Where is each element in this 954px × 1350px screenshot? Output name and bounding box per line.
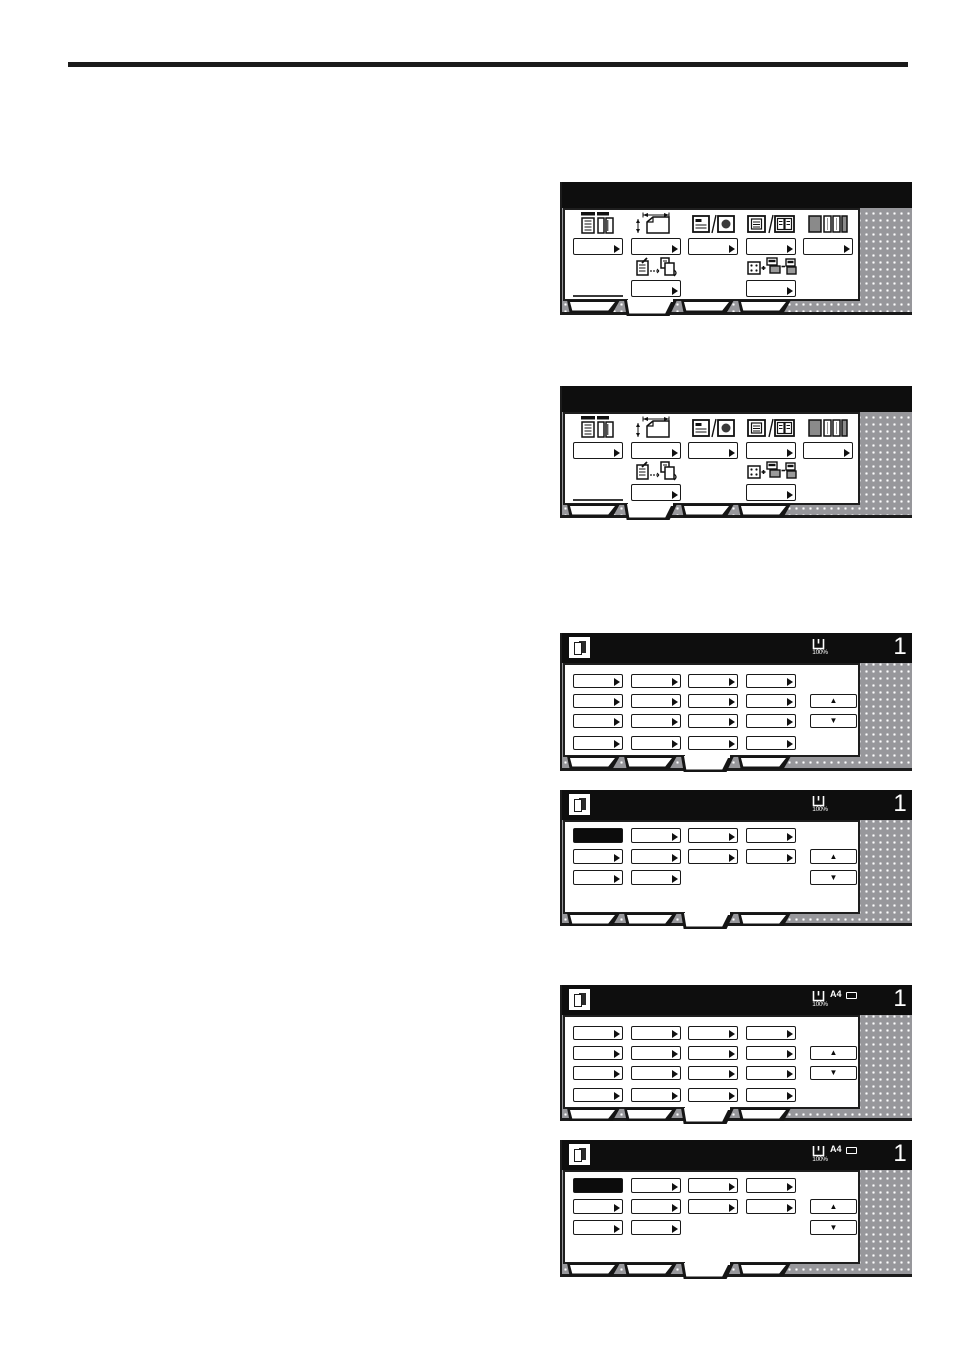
list-item-button[interactable]	[631, 694, 681, 708]
list-item-button[interactable]	[688, 849, 738, 864]
corner-arrow-icon	[729, 740, 735, 748]
tab-face	[570, 915, 615, 924]
screen-tab-3[interactable]	[681, 1263, 734, 1279]
tab-face	[627, 915, 672, 924]
corner-arrow-icon	[787, 245, 793, 253]
corner-arrow-icon	[729, 1050, 735, 1058]
tab-face	[627, 504, 672, 518]
list-item-button[interactable]	[631, 714, 681, 728]
screen-tab-4[interactable]	[738, 300, 791, 313]
screen-header-bar	[562, 386, 912, 412]
tab-face	[741, 506, 786, 515]
paper-sheet-icon	[846, 1147, 857, 1154]
corner-arrow-icon	[614, 1225, 620, 1233]
active-tab-body-join	[685, 1105, 730, 1110]
feature-button[interactable]	[631, 442, 681, 459]
feature-button[interactable]	[688, 238, 738, 255]
corner-arrow-icon	[672, 245, 678, 253]
feature-button[interactable]	[746, 484, 796, 501]
scroll-down-button[interactable]: ▼	[810, 1066, 857, 1080]
original-document-icon	[569, 1144, 590, 1165]
list-item-button[interactable]	[746, 1046, 796, 1060]
list-item-button[interactable]	[746, 1026, 796, 1040]
tab-face	[741, 915, 786, 924]
copy-count-value: 1	[890, 634, 910, 660]
screen-tab-2[interactable]	[624, 1108, 677, 1121]
list-item-button[interactable]	[573, 736, 623, 750]
active-tab-body-join	[685, 1260, 730, 1265]
corner-arrow-icon	[729, 1204, 735, 1212]
screen-tab-1[interactable]	[567, 1263, 620, 1276]
list-item-button[interactable]	[631, 1088, 681, 1102]
page-front	[574, 642, 582, 655]
feature-button[interactable]	[573, 238, 623, 255]
corner-arrow-icon	[614, 449, 620, 457]
list-item-button[interactable]	[573, 1220, 623, 1235]
page-front	[574, 994, 582, 1007]
corner-arrow-icon	[614, 1050, 620, 1058]
original-document-icon	[569, 989, 590, 1010]
screen-tab-3[interactable]	[681, 504, 734, 517]
sort-stack-icon	[801, 416, 855, 440]
screen-tab-4[interactable]	[738, 1108, 791, 1121]
list-item-button[interactable]	[631, 828, 681, 843]
scroll-up-button[interactable]: ▲	[810, 1199, 857, 1214]
tab-face	[570, 302, 615, 311]
page-front	[574, 1149, 582, 1162]
corner-arrow-icon	[614, 698, 620, 706]
list-item-button[interactable]	[631, 674, 681, 688]
screen-tab-1[interactable]	[567, 300, 620, 313]
screen-tab-4[interactable]	[738, 756, 791, 769]
corner-arrow-icon	[672, 287, 678, 295]
feature-button[interactable]	[746, 280, 796, 297]
corner-arrow-icon	[672, 875, 678, 883]
corner-arrow-icon	[729, 449, 735, 457]
corner-arrow-icon	[844, 245, 850, 253]
corner-arrow-icon	[787, 1204, 793, 1212]
screen-tab-1[interactable]	[567, 756, 620, 769]
scroll-down-button[interactable]: ▼	[810, 1220, 857, 1235]
screen-tab-4[interactable]	[738, 504, 791, 517]
list-item-button[interactable]	[631, 849, 681, 864]
corner-arrow-icon	[787, 678, 793, 686]
screen-body	[563, 412, 860, 505]
list-item-button[interactable]	[688, 1046, 738, 1060]
feature-button[interactable]	[573, 442, 623, 459]
list-item-button[interactable]	[631, 870, 681, 885]
duplex-pages-icon	[571, 212, 625, 236]
list-item-button[interactable]	[746, 1178, 796, 1193]
edit-copy-icon	[629, 460, 683, 484]
corner-arrow-icon	[844, 449, 850, 457]
tab-face	[684, 1263, 729, 1277]
list-item-button[interactable]	[746, 736, 796, 750]
list-item-button[interactable]	[573, 870, 623, 885]
list-item-button[interactable]	[746, 1066, 796, 1080]
tab-face	[570, 1110, 615, 1119]
list-item-button[interactable]	[631, 1220, 681, 1235]
tab-face	[684, 302, 729, 311]
tab-face	[741, 758, 786, 767]
tab-face	[684, 756, 729, 770]
corner-arrow-icon	[729, 245, 735, 253]
size-list-screen-a4-selected: 100%A41▲▼	[560, 1140, 912, 1277]
scroll-up-button[interactable]: ▲	[810, 849, 857, 864]
corner-arrow-icon	[614, 678, 620, 686]
edit-copy-icon	[629, 256, 683, 280]
feature-button[interactable]	[631, 484, 681, 501]
screen-tab-3[interactable]	[681, 1108, 734, 1124]
list-item-button[interactable]	[631, 1178, 681, 1193]
list-item-button[interactable]	[746, 694, 796, 708]
corner-arrow-icon	[672, 1030, 678, 1038]
corner-arrow-icon	[614, 245, 620, 253]
list-item-button[interactable]	[688, 1066, 738, 1080]
program-blocks-icon	[744, 256, 798, 280]
feature-button[interactable]	[803, 442, 853, 459]
corner-arrow-icon	[729, 1070, 735, 1078]
list-item-button[interactable]	[631, 736, 681, 750]
feature-button[interactable]	[688, 442, 738, 459]
tab-face	[627, 758, 672, 767]
tab-face	[570, 1265, 615, 1274]
tab-face	[684, 913, 729, 927]
scroll-up-button[interactable]: ▲	[810, 1046, 857, 1060]
screen-header-bar: 100%A41	[562, 985, 912, 1015]
list-item-button[interactable]	[573, 1026, 623, 1040]
corner-arrow-icon	[672, 1204, 678, 1212]
added-functions-screen-a	[560, 182, 912, 315]
list-item-button[interactable]	[688, 674, 738, 688]
corner-arrow-icon	[787, 718, 793, 726]
tab-face	[741, 1265, 786, 1274]
list-item-button[interactable]	[688, 828, 738, 843]
list-item-button[interactable]	[688, 694, 738, 708]
paper-sheet-icon	[846, 992, 857, 999]
list-item-button[interactable]	[573, 1199, 623, 1214]
corner-arrow-icon	[672, 1050, 678, 1058]
zoom-ratio-label: 100%	[805, 807, 835, 814]
screen-body: ▲▼	[563, 820, 860, 914]
corner-arrow-icon	[787, 740, 793, 748]
screen-tab-4[interactable]	[738, 1263, 791, 1276]
feature-button[interactable]	[803, 238, 853, 255]
corner-arrow-icon	[787, 287, 793, 295]
active-tab-body-join	[628, 297, 673, 302]
tab-face	[627, 1265, 672, 1274]
added-functions-screen-b	[560, 386, 912, 518]
tab-face	[684, 1108, 729, 1122]
screen-tab-2[interactable]	[624, 756, 677, 769]
paper-size-label: A4	[830, 990, 842, 999]
corner-arrow-icon	[787, 449, 793, 457]
screen-tab-2[interactable]	[624, 504, 677, 520]
sort-stack-icon	[801, 212, 855, 236]
list-item-button[interactable]	[631, 1046, 681, 1060]
list-item-button[interactable]	[573, 1088, 623, 1102]
corner-arrow-icon	[672, 1183, 678, 1191]
corner-arrow-icon	[672, 1092, 678, 1100]
original-size-icon	[629, 416, 683, 440]
tab-face	[627, 1110, 672, 1119]
corner-arrow-icon	[614, 1092, 620, 1100]
corner-arrow-icon	[614, 854, 620, 862]
list-item-button[interactable]	[688, 1178, 738, 1193]
book-pages-icon	[744, 212, 798, 236]
corner-arrow-icon	[787, 833, 793, 841]
corner-arrow-icon	[614, 875, 620, 883]
screen-header-bar: 100%1	[562, 633, 912, 663]
list-item-button[interactable]	[573, 1066, 623, 1080]
corner-arrow-icon	[787, 854, 793, 862]
list-item-button[interactable]	[688, 736, 738, 750]
feature-button[interactable]	[631, 280, 681, 297]
corner-arrow-icon	[614, 740, 620, 748]
tab-face	[741, 1110, 786, 1119]
feature-button[interactable]	[746, 442, 796, 459]
list-item-button[interactable]	[573, 714, 623, 728]
screen-tab-1[interactable]	[567, 504, 620, 517]
text-photo-icon	[686, 212, 740, 236]
corner-arrow-icon	[787, 1092, 793, 1100]
list-item-button-selected[interactable]	[573, 828, 623, 843]
corner-arrow-icon	[672, 833, 678, 841]
screen-tab-2[interactable]	[624, 913, 677, 926]
corner-arrow-icon	[672, 1225, 678, 1233]
tab-face	[684, 506, 729, 515]
page-front	[574, 799, 582, 812]
status-message-line	[573, 295, 623, 297]
screen-tab-3[interactable]	[681, 913, 734, 929]
original-document-icon	[569, 637, 590, 658]
screen-body: ▲▼	[563, 1015, 860, 1109]
duplex-pages-icon	[571, 416, 625, 440]
paper-size-label: A4	[830, 1145, 842, 1154]
corner-arrow-icon	[672, 449, 678, 457]
corner-arrow-icon	[787, 698, 793, 706]
list-item-button-selected[interactable]	[573, 1178, 623, 1193]
corner-arrow-icon	[787, 491, 793, 499]
corner-arrow-icon	[787, 1183, 793, 1191]
list-item-button[interactable]	[746, 674, 796, 688]
text-photo-icon	[686, 416, 740, 440]
corner-arrow-icon	[672, 740, 678, 748]
list-item-button[interactable]	[631, 1199, 681, 1214]
copy-count-value: 1	[890, 1141, 910, 1167]
list-item-button[interactable]	[573, 1046, 623, 1060]
list-item-button[interactable]	[688, 714, 738, 728]
corner-arrow-icon	[729, 1183, 735, 1191]
feature-button[interactable]	[631, 238, 681, 255]
list-item-button[interactable]	[688, 1026, 738, 1040]
size-list-screen-a4-blank: 100%A41▲▼	[560, 985, 912, 1121]
screen-body: ▲▼	[563, 1170, 860, 1264]
corner-arrow-icon	[672, 854, 678, 862]
tab-face	[570, 758, 615, 767]
copy-count-value: 1	[890, 986, 910, 1012]
scroll-up-button[interactable]: ▲	[810, 694, 857, 708]
corner-arrow-icon	[787, 1030, 793, 1038]
screen-header-bar: 100%A41	[562, 1140, 912, 1170]
zoom-ratio-label: 100%	[805, 650, 835, 657]
corner-arrow-icon	[614, 1070, 620, 1078]
corner-arrow-icon	[729, 1092, 735, 1100]
corner-arrow-icon	[729, 698, 735, 706]
screen-tab-2[interactable]	[624, 1263, 677, 1276]
corner-arrow-icon	[614, 718, 620, 726]
list-item-button[interactable]	[688, 1199, 738, 1214]
list-item-button[interactable]	[573, 674, 623, 688]
corner-arrow-icon	[672, 491, 678, 499]
size-list-screen-blank: 100%1▲▼	[560, 633, 912, 771]
corner-arrow-icon	[729, 678, 735, 686]
status-message-line	[573, 499, 623, 501]
scroll-down-button[interactable]: ▼	[810, 714, 857, 728]
corner-arrow-icon	[672, 698, 678, 706]
screen-header-bar: 100%1	[562, 790, 912, 820]
original-size-icon	[629, 212, 683, 236]
corner-arrow-icon	[614, 1030, 620, 1038]
screen-header-bar	[562, 182, 912, 208]
screen-tab-4[interactable]	[738, 913, 791, 926]
feature-button[interactable]	[746, 238, 796, 255]
tab-face	[627, 300, 672, 314]
list-item-button[interactable]	[746, 1199, 796, 1214]
copy-count-value: 1	[890, 791, 910, 817]
original-document-icon	[569, 794, 590, 815]
screen-tab-2[interactable]	[624, 300, 677, 316]
corner-arrow-icon	[729, 718, 735, 726]
list-item-button[interactable]	[573, 694, 623, 708]
size-list-screen-selected: 100%1▲▼	[560, 790, 912, 926]
corner-arrow-icon	[672, 718, 678, 726]
book-pages-icon	[744, 416, 798, 440]
list-item-button[interactable]	[573, 849, 623, 864]
list-item-button[interactable]	[746, 849, 796, 864]
tab-face	[570, 506, 615, 515]
page-header-rule	[68, 62, 908, 67]
active-tab-body-join	[628, 501, 673, 506]
list-item-button[interactable]	[746, 1088, 796, 1102]
active-tab-body-join	[685, 753, 730, 758]
list-item-button[interactable]	[746, 828, 796, 843]
list-item-button[interactable]	[688, 1088, 738, 1102]
corner-arrow-icon	[787, 1050, 793, 1058]
corner-arrow-icon	[672, 1070, 678, 1078]
zoom-ratio-label: 100%	[805, 1002, 835, 1009]
corner-arrow-icon	[729, 833, 735, 841]
screen-tab-3[interactable]	[681, 756, 734, 772]
screen-body: ▲▼	[563, 663, 860, 757]
list-item-button[interactable]	[631, 1066, 681, 1080]
screen-tab-1[interactable]	[567, 913, 620, 926]
corner-arrow-icon	[729, 854, 735, 862]
manual-page: 100%1▲▼100%1▲▼100%A41▲▼100%A41▲▼	[0, 0, 954, 1350]
corner-arrow-icon	[614, 1204, 620, 1212]
corner-arrow-icon	[729, 1030, 735, 1038]
corner-arrow-icon	[672, 678, 678, 686]
scroll-down-button[interactable]: ▼	[810, 870, 857, 885]
zoom-ratio-label: 100%	[805, 1157, 835, 1164]
program-blocks-icon	[744, 460, 798, 484]
screen-tab-1[interactable]	[567, 1108, 620, 1121]
screen-tab-3[interactable]	[681, 300, 734, 313]
list-item-button[interactable]	[631, 1026, 681, 1040]
corner-arrow-icon	[787, 1070, 793, 1078]
active-tab-body-join	[685, 910, 730, 915]
tab-face	[741, 302, 786, 311]
list-item-button[interactable]	[746, 714, 796, 728]
screen-body	[563, 208, 860, 301]
